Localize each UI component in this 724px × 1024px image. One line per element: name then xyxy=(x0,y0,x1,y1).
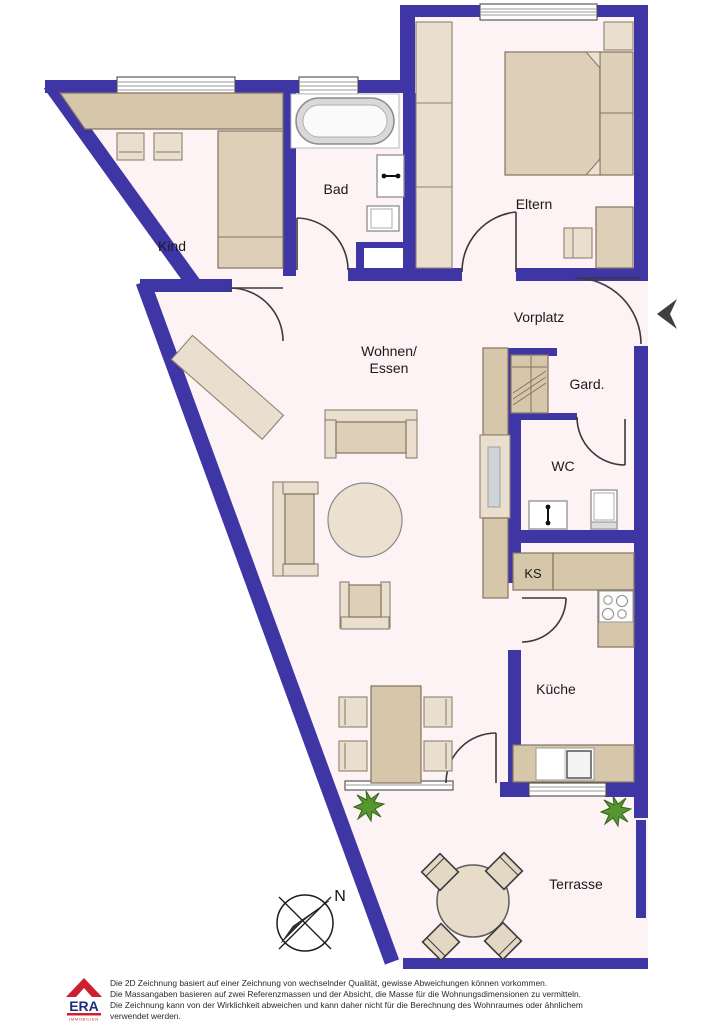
room-label-kind: Kind xyxy=(158,238,186,254)
sofa-left xyxy=(273,482,318,576)
disclaimer-line: Die Massangaben basieren auf zwei Refere… xyxy=(110,989,670,1000)
dining-chair xyxy=(339,741,367,771)
room-label-eltern: Eltern xyxy=(516,196,553,212)
room-label-gard: Gard. xyxy=(569,376,604,392)
disclaimer-line: Die Zeichnung kann von der Wirklichkeit … xyxy=(110,1000,670,1011)
floor-plan-drawing: N Kind Bad Eltern Vorplatz Wohnen/ Essen… xyxy=(0,0,724,1024)
wardrobe-gard xyxy=(511,355,548,413)
armchair xyxy=(340,582,390,629)
compass-icon: N xyxy=(277,888,346,951)
era-logo: ERA IMMOBILIEN xyxy=(66,978,102,1022)
wardrobe xyxy=(416,22,452,268)
compass-north-label: N xyxy=(334,888,346,905)
window-bad xyxy=(299,77,358,94)
floor-plan-page: N Kind Bad Eltern Vorplatz Wohnen/ Essen… xyxy=(0,0,724,1024)
sink xyxy=(377,155,404,197)
sink-wc xyxy=(529,501,567,529)
bed-single xyxy=(218,131,283,268)
counter-top xyxy=(553,553,634,590)
window-eltern xyxy=(480,4,597,20)
window-kueche xyxy=(529,783,606,796)
stove xyxy=(599,591,633,622)
room-label-vorplatz: Vorplatz xyxy=(514,309,565,325)
room-label-terrasse: Terrasse xyxy=(549,876,603,892)
chair xyxy=(117,133,144,160)
disclaimer-line: Die 2D Zeichnung basiert auf einer Zeich… xyxy=(110,978,670,989)
room-label-wc: WC xyxy=(551,458,574,474)
room-label-wohnen-2: Essen xyxy=(370,360,409,376)
dresser xyxy=(596,207,633,268)
double-bed xyxy=(505,52,633,175)
coffee-table xyxy=(328,483,402,557)
toilet-wc xyxy=(591,490,617,529)
furniture-gard xyxy=(511,355,548,413)
nightstand xyxy=(604,22,633,50)
toilet xyxy=(367,206,399,231)
bathtub xyxy=(291,94,399,148)
shaft-niche xyxy=(364,248,403,268)
kitchen-sink xyxy=(536,748,594,780)
sofa-top xyxy=(325,410,417,458)
room-label-kueche: Küche xyxy=(536,681,576,697)
desk xyxy=(60,93,283,129)
chair xyxy=(154,133,182,160)
room-label-wohnen-1: Wohnen/ xyxy=(361,343,417,359)
era-division: IMMOBILIEN xyxy=(69,1017,99,1022)
era-roof-icon xyxy=(66,978,102,997)
dining-chair xyxy=(339,697,367,727)
room-label-ks: KS xyxy=(524,566,542,581)
disclaimer: Die 2D Zeichnung basiert auf einer Zeich… xyxy=(110,978,670,1022)
disclaimer-line: verwendet werden. xyxy=(110,1011,670,1022)
era-brand: ERA xyxy=(69,998,99,1014)
glass-panel xyxy=(488,447,500,507)
dining-chair xyxy=(424,697,452,727)
window-kind xyxy=(117,77,235,94)
cabinet-column xyxy=(480,348,510,598)
room-label-bad: Bad xyxy=(324,181,349,197)
dining-table xyxy=(371,686,421,783)
stool xyxy=(564,228,592,258)
entrance-arrow-icon xyxy=(657,299,677,329)
dining-chair xyxy=(424,741,452,771)
